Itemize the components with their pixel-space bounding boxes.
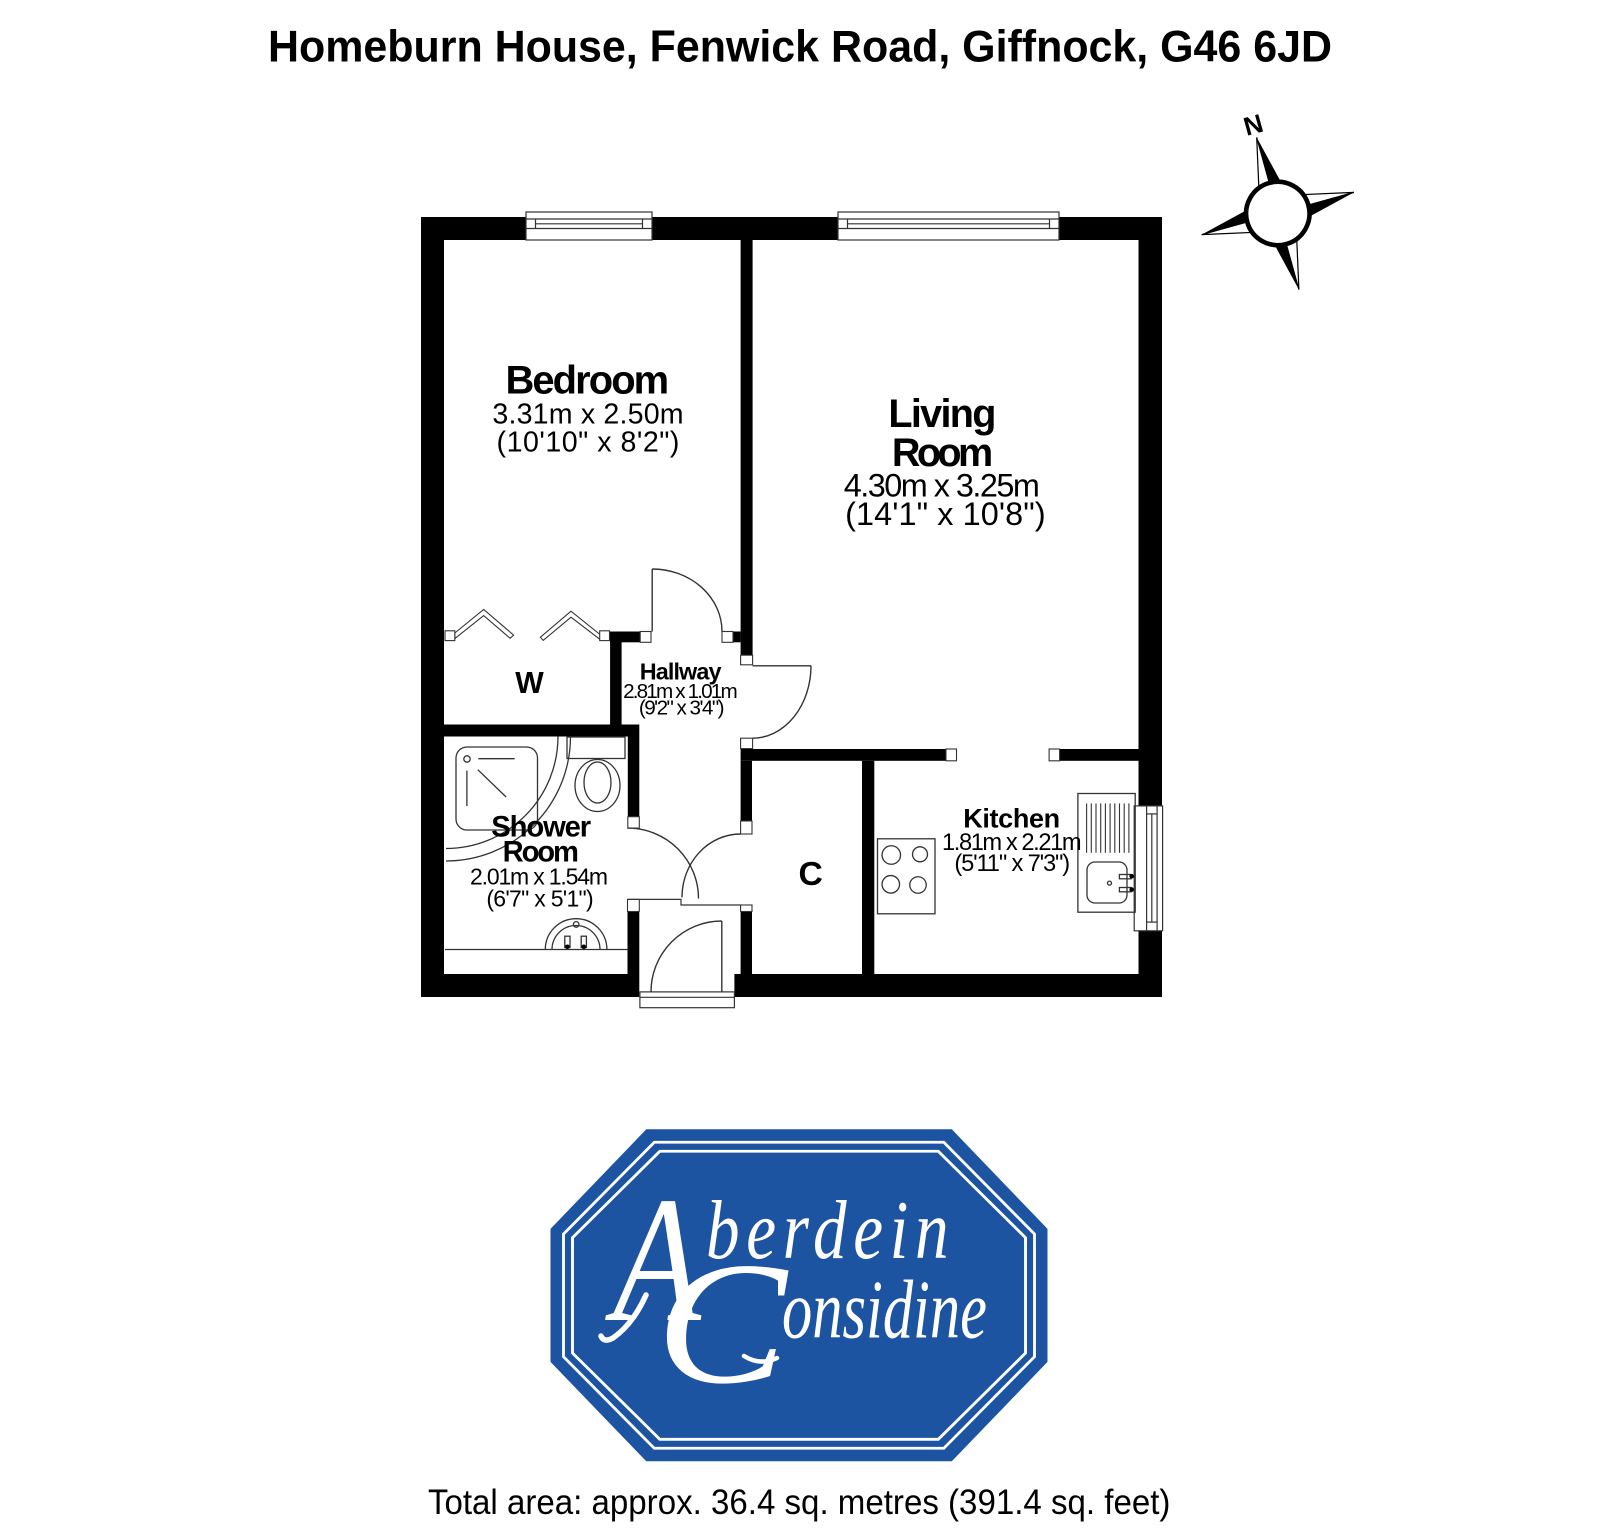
- svg-text:C: C: [656, 1227, 789, 1421]
- svg-text:(5'11" x 7'3"): (5'11" x 7'3"): [954, 851, 1070, 877]
- svg-text:(6'7" x 5'1"): (6'7" x 5'1"): [486, 885, 593, 911]
- svg-text:Living: Living: [888, 392, 996, 436]
- svg-text:Kitchen: Kitchen: [963, 804, 1060, 834]
- svg-text:W: W: [515, 667, 544, 700]
- svg-text:onsidine: onsidine: [782, 1263, 987, 1356]
- svg-text:Bedroom: Bedroom: [505, 359, 669, 403]
- svg-text:Homeburn House, Fenwick Road,: Homeburn House, Fenwick Road, Giffnock, …: [268, 23, 1332, 72]
- svg-text:Total area: approx. 36.4 sq. m: Total area: approx. 36.4 sq. metres (391…: [428, 1483, 1171, 1522]
- svg-text:(9'2" x 3'4"): (9'2" x 3'4"): [639, 697, 725, 720]
- svg-text:N: N: [1240, 108, 1266, 142]
- svg-text:(10'10" x 8'2"): (10'10" x 8'2"): [497, 426, 680, 458]
- svg-text:(14'1" x 10'8"): (14'1" x 10'8"): [845, 496, 1046, 532]
- svg-text:C: C: [799, 855, 823, 893]
